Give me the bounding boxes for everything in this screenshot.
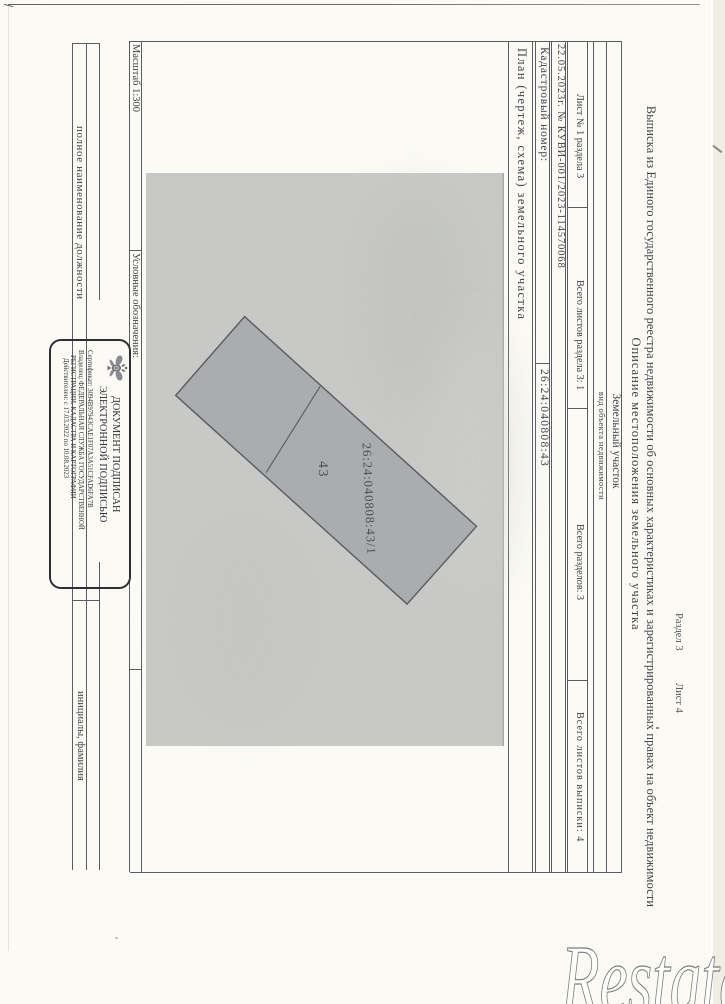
svg-text:Restate: Restate [560,926,725,1004]
